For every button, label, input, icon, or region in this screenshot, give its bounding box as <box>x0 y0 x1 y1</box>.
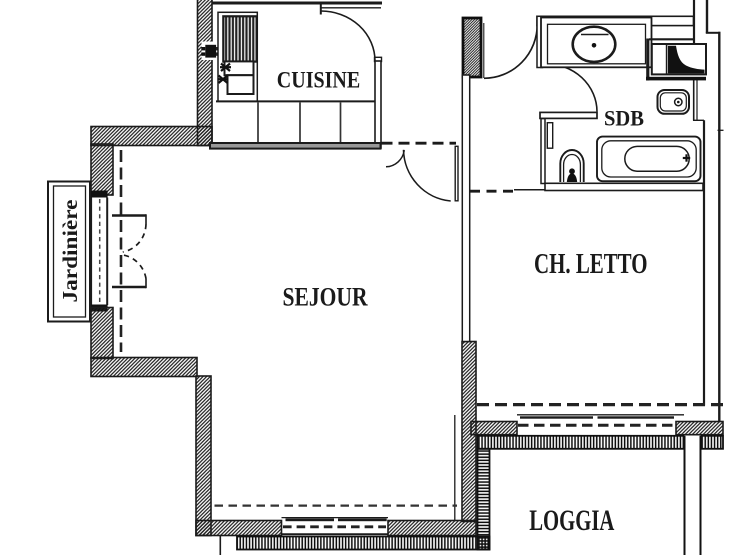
svg-text:LOGGIA: LOGGIA <box>529 505 615 537</box>
svg-text:SEJOUR: SEJOUR <box>283 283 368 312</box>
svg-text:CUISINE: CUISINE <box>277 67 360 92</box>
svg-text:SDB: SDB <box>604 106 644 131</box>
svg-text:CH. LETTO: CH. LETTO <box>534 248 648 280</box>
svg-text:Jardinière: Jardinière <box>58 200 82 303</box>
